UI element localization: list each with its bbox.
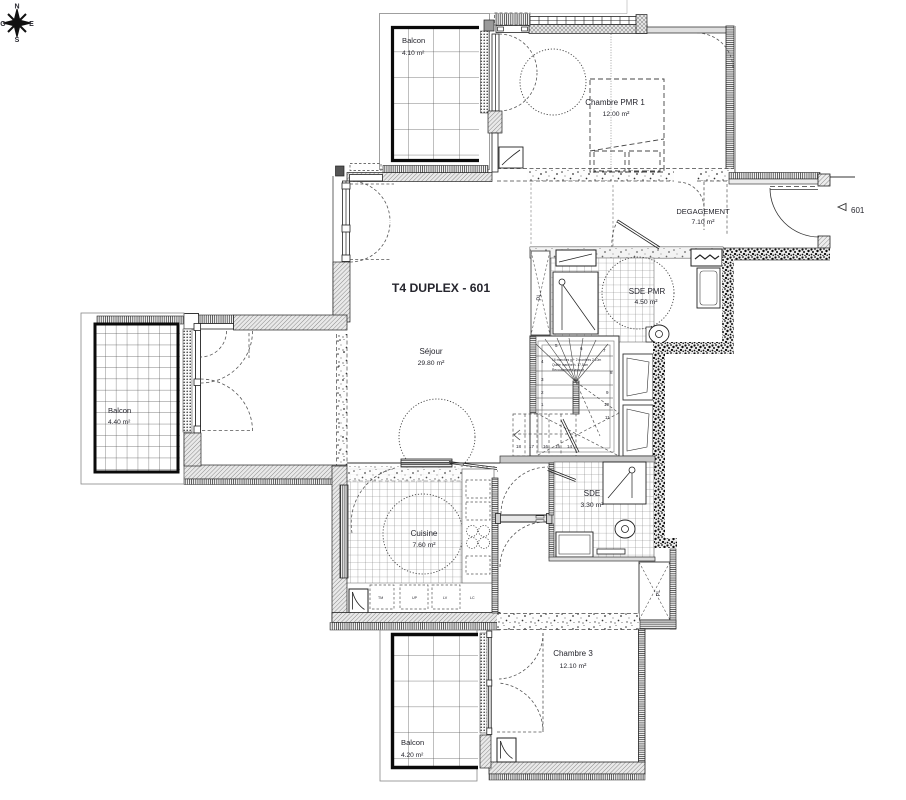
- svg-text:Séjour: Séjour: [419, 347, 442, 356]
- svg-text:TM: TM: [378, 596, 383, 600]
- svg-text:N: N: [14, 4, 19, 11]
- svg-text:17: 17: [529, 444, 535, 449]
- svg-text:29.80 m²: 29.80 m²: [418, 360, 446, 367]
- svg-text:S: S: [15, 37, 20, 44]
- svg-text:12.10 m²: 12.10 m²: [560, 663, 588, 670]
- svg-text:4.10 m²: 4.10 m²: [402, 50, 425, 57]
- svg-text:Recouvrement assuré: Recouvrement assuré: [552, 368, 584, 372]
- svg-text:T4 DUPLEX - 601: T4 DUPLEX - 601: [392, 281, 490, 295]
- svg-text:Cuisine: Cuisine: [411, 529, 438, 538]
- svg-text:16 marches g + 2 montées 2.10m: 16 marches g + 2 montées 2.10m: [552, 358, 601, 362]
- svg-text:4.20 m²: 4.20 m²: [401, 752, 424, 759]
- svg-text:LC: LC: [470, 596, 475, 600]
- svg-text:Balcon: Balcon: [401, 738, 424, 747]
- svg-text:DEGAGEMENT: DEGAGEMENT: [676, 207, 730, 216]
- svg-text:Chambre 3: Chambre 3: [553, 649, 593, 658]
- svg-text:SDE PMR: SDE PMR: [629, 287, 666, 296]
- svg-text:SDE: SDE: [584, 489, 600, 498]
- svg-text:14: 14: [567, 444, 573, 449]
- svg-text:16: 16: [543, 444, 549, 449]
- svg-text:4.40 m²: 4.40 m²: [108, 419, 131, 426]
- svg-text:LV: LV: [443, 596, 448, 600]
- svg-text:Chambre PMR 1: Chambre PMR 1: [585, 98, 645, 107]
- svg-text:601: 601: [851, 206, 865, 215]
- svg-text:O: O: [0, 21, 6, 28]
- svg-text:4.50 m²: 4.50 m²: [634, 299, 658, 306]
- svg-text:7.60 m²: 7.60 m²: [412, 542, 436, 549]
- svg-text:18: 18: [516, 444, 522, 449]
- svg-text:Quitte marche h. 17,5cm: Quitte marche h. 17,5cm: [552, 363, 588, 367]
- svg-text:Balcon: Balcon: [108, 406, 131, 415]
- svg-text:Balcon: Balcon: [402, 36, 425, 45]
- svg-text:3.30 m²: 3.30 m²: [580, 502, 604, 509]
- svg-text:E: E: [29, 21, 34, 28]
- svg-text:7.10 m²: 7.10 m²: [691, 219, 715, 226]
- svg-text:PL: PL: [656, 590, 662, 597]
- svg-text:PL: PL: [537, 293, 543, 301]
- svg-text:12.00 m²: 12.00 m²: [603, 111, 631, 118]
- svg-text:UP: UP: [412, 596, 418, 600]
